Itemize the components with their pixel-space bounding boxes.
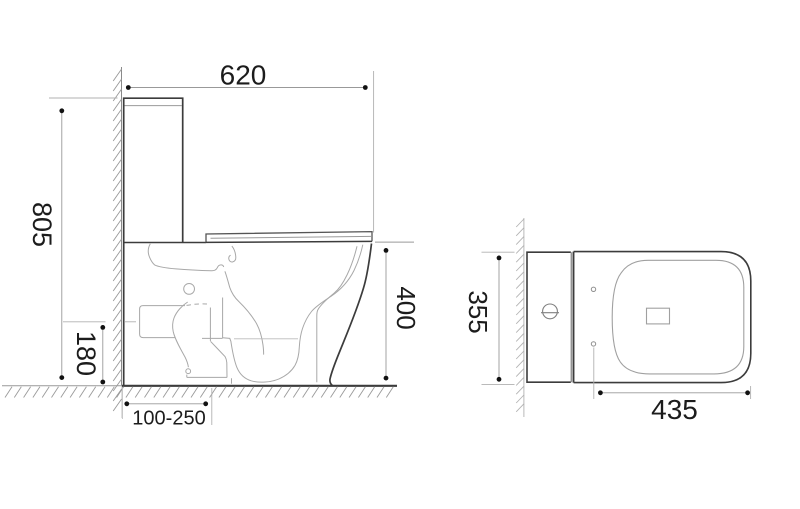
svg-text:400: 400 [391,286,421,329]
svg-text:435: 435 [651,394,698,425]
svg-text:620: 620 [220,60,267,91]
svg-text:805: 805 [27,202,57,247]
svg-text:355: 355 [463,290,493,333]
svg-text:180: 180 [71,331,101,376]
svg-text:100-250: 100-250 [132,408,205,430]
